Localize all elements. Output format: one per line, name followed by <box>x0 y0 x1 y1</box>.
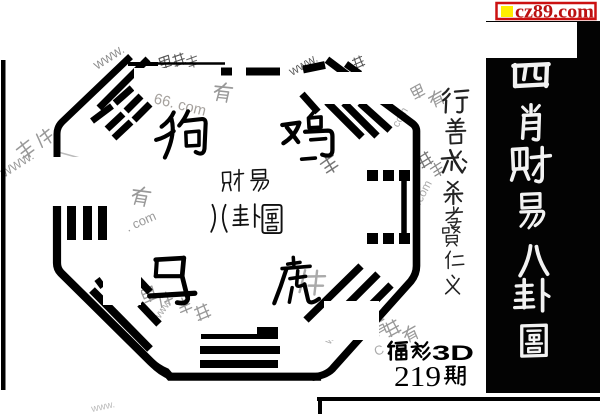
svg-text:219: 219 <box>394 362 441 393</box>
svg-text:cz89.com: cz89.com <box>515 3 595 23</box>
